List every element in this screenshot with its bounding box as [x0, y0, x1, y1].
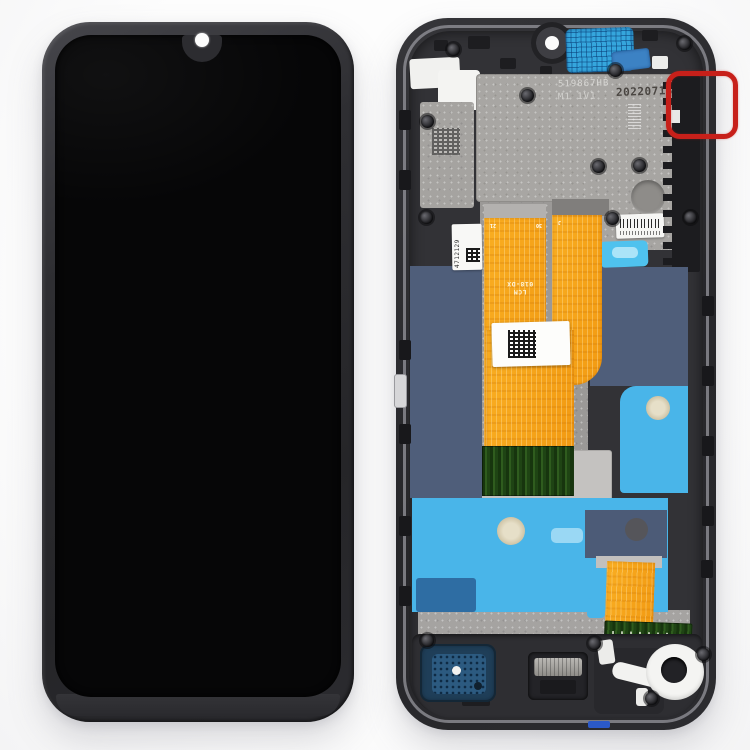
adhesive-pull-tab-slot [612, 247, 638, 258]
lcd-connector-pcb [482, 446, 574, 496]
side-button [394, 374, 407, 408]
red-annotation-box [666, 71, 738, 139]
rail-cutout [399, 424, 411, 444]
rail-cutout [399, 170, 411, 190]
rail-cutout [399, 516, 411, 536]
screw-icon [421, 634, 434, 647]
adhesive-small-tab [587, 598, 605, 618]
adhesive-ring-cutout [646, 396, 670, 420]
front-panel-chin [56, 694, 340, 716]
top-cutout-dark [500, 58, 516, 69]
front-panel-screen [55, 35, 341, 697]
screw-icon [521, 89, 534, 102]
screw-icon [421, 115, 434, 128]
screw-icon [447, 43, 460, 56]
etched-model-code: M1 1V1 [558, 92, 597, 103]
screw-icon [684, 211, 697, 224]
grille-screw-hole [452, 666, 461, 675]
flex-pin-mark: 30 [536, 222, 542, 228]
etched-qr-code-icon [432, 128, 460, 155]
rail-cutout [702, 506, 714, 526]
screw-icon [697, 648, 710, 661]
headphone-jack-hole [661, 657, 687, 683]
flex-connector-stiffener-right [552, 199, 609, 216]
screw-icon [645, 692, 658, 705]
top-cutout-white-small [652, 56, 668, 69]
barcode-digits-row [620, 231, 660, 235]
screw-icon [609, 64, 622, 77]
adhesive-light-slot [551, 528, 583, 543]
adhesive-pad-left [410, 266, 482, 498]
top-cutout-dark [642, 30, 658, 41]
serial-side-sticker-number: 4712129 [454, 226, 461, 268]
grille-dark-hole [474, 682, 482, 690]
top-cutout-dark [468, 36, 490, 49]
bottom-blue-component [588, 721, 610, 728]
screw-icon [606, 212, 619, 225]
barcode-stripes-icon [620, 219, 660, 228]
rail-cutout [399, 110, 411, 130]
top-cutout-dark [434, 40, 448, 51]
flex-label-part: 018-DX [507, 280, 533, 288]
screw-icon [420, 211, 433, 224]
product-photo: 519867HB M1 1V1 20220713 LCM 018-DX 21 3… [0, 0, 750, 750]
etched-serial-number: 519867HB [558, 79, 610, 90]
adhesive-pad-hole [625, 518, 648, 541]
screw-icon [633, 159, 646, 172]
flex-print-label: LCM 018-DX [498, 280, 542, 296]
small-flex-cable [605, 561, 655, 627]
adhesive-ring-cutout [497, 517, 525, 545]
usb-port-contacts [534, 658, 582, 676]
etched-barcode-icon [628, 103, 641, 129]
rail-cutout [702, 366, 714, 386]
flex-pin-mark: J [558, 219, 561, 225]
qr-code-icon [508, 330, 536, 358]
adhesive-dark-patch [416, 578, 476, 612]
flex-pin-mark: 21 [490, 222, 496, 228]
screw-icon [678, 37, 691, 50]
screw-icon [588, 637, 601, 650]
rail-cutout [702, 296, 714, 316]
rail-cutout [399, 586, 411, 606]
side-sticker-qr-icon [466, 248, 480, 262]
usb-port-opening [540, 680, 576, 694]
rail-cutout [702, 436, 714, 456]
front-camera-hole-icon [195, 33, 209, 47]
plate-camera-hole [631, 180, 665, 214]
adhesive-pad-right [590, 267, 688, 386]
front-camera-lens-hole [545, 36, 559, 50]
flex-connector-stiffener-left [484, 204, 546, 219]
rail-cutout [701, 560, 713, 578]
flex-label-lcm: LCM [513, 288, 526, 296]
screw-icon [592, 160, 605, 173]
rail-cutout [399, 340, 411, 360]
